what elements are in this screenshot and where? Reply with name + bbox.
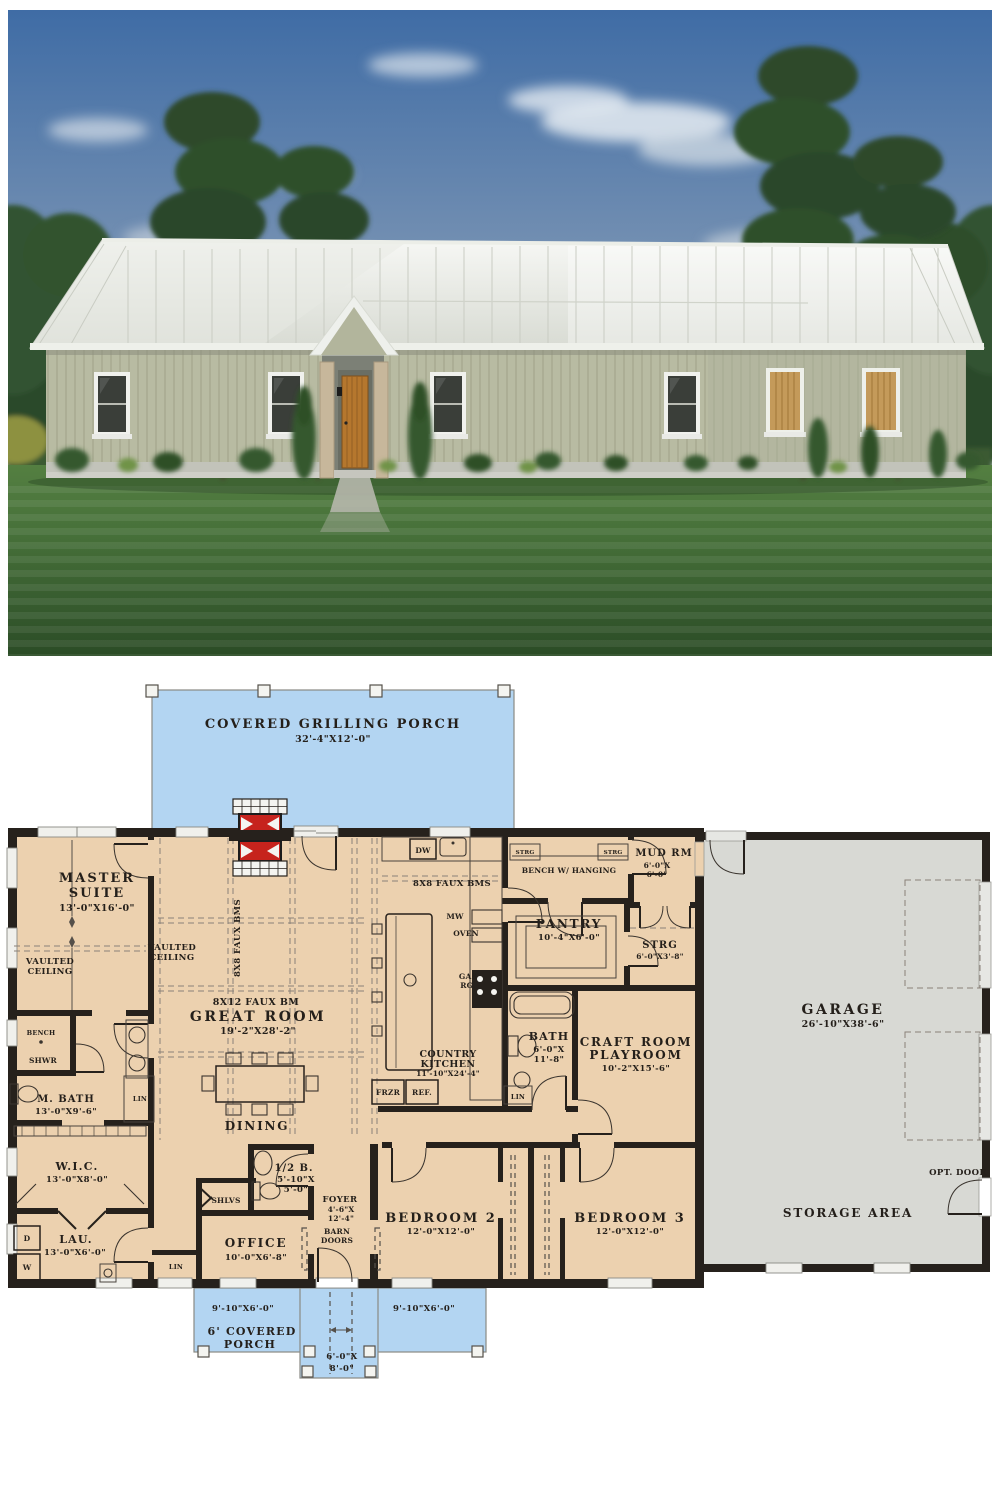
porch-light bbox=[337, 387, 342, 396]
vaulted-ceiling-great-2: CEILING bbox=[149, 953, 194, 963]
covered-porch-label-1: 6' COVERED bbox=[208, 1325, 297, 1338]
stoop-dims-2: 8'-0" bbox=[330, 1364, 354, 1374]
bath-label: BATH bbox=[529, 1030, 570, 1043]
office-lin-label: LIN bbox=[169, 1263, 183, 1271]
bedroom3-dims: 12'-0"X12'-0" bbox=[596, 1227, 664, 1237]
stoop-dims-1: 6'-0"X bbox=[326, 1352, 357, 1362]
strg-room-label: STRG bbox=[642, 940, 678, 951]
porch-left-dims: 9'-10"X6'-0" bbox=[212, 1304, 274, 1314]
strg-room-dims: 6'-0"X3'-8" bbox=[636, 952, 684, 961]
wic-dims: 13'-0"X8'-0" bbox=[46, 1175, 108, 1185]
mud-room-dims-1: 6'-0"X bbox=[644, 861, 671, 870]
office-label: OFFICE bbox=[225, 1236, 288, 1250]
grilling-porch-floor bbox=[152, 690, 514, 832]
great-room-label: GREAT ROOM bbox=[190, 1009, 326, 1025]
opt-door-opening bbox=[979, 1178, 991, 1216]
kitchen-beams-label: 8X8 FAUX BMS bbox=[413, 879, 491, 889]
bench-strg-left-label: STRG bbox=[515, 850, 534, 856]
pantry-dims: 10'-4"X6'-0" bbox=[538, 933, 600, 943]
house bbox=[30, 240, 984, 478]
garage-floor bbox=[702, 836, 986, 1266]
barn-doors-label-1: BARN bbox=[324, 1227, 350, 1236]
craft-room-label-1: CRAFT ROOM bbox=[580, 1035, 693, 1049]
master-bath-label: M. BATH bbox=[37, 1094, 95, 1105]
laundry-dims: 13'-0"X6'-0" bbox=[44, 1248, 106, 1258]
foyer-dims-2: 12'-4" bbox=[328, 1214, 354, 1223]
half-bath-label: 1/2 B. bbox=[275, 1163, 314, 1174]
portico-column-left bbox=[320, 362, 334, 478]
gas-range-label-2: RG. bbox=[460, 981, 476, 990]
floor-plan-svg: COVERED GRILLING PORCH 32'-4"X12'-0" MAS… bbox=[0, 680, 1000, 1400]
storage-area-label: STORAGE AREA bbox=[783, 1206, 913, 1220]
bench-label: BENCH bbox=[27, 1029, 56, 1037]
mud-room-label: MUD RM bbox=[635, 848, 692, 859]
great-room-beam-8x12: 8X12 FAUX BM bbox=[213, 997, 299, 1008]
gas-range-label-1: GAS bbox=[459, 972, 477, 981]
mudroom-garage-door bbox=[695, 842, 704, 876]
barn-doors-label-2: DOORS bbox=[321, 1236, 353, 1245]
half-bath-dims-2: 5'-0" bbox=[284, 1185, 308, 1195]
master-suite-dims: 13'-0"X16'-0" bbox=[59, 903, 135, 914]
craft-room-dims: 10'-2"X15'-6" bbox=[602, 1064, 670, 1074]
vaulted-ceiling-master-1: VAULTED bbox=[25, 957, 74, 967]
vaulted-ceiling-great-1: VAULTED bbox=[147, 943, 196, 953]
bench-strg-right-label: STRG bbox=[603, 850, 622, 856]
country-kitchen-dims: 11'-10"X24'-4" bbox=[416, 1069, 480, 1078]
mud-room-dims-2: 6'-0" bbox=[647, 870, 668, 879]
washer-label: W bbox=[22, 1263, 32, 1272]
house-rendering-svg bbox=[8, 10, 992, 656]
dryer-label: D bbox=[24, 1234, 31, 1243]
house-rendering-photo bbox=[8, 10, 992, 656]
oven-label: OVEN bbox=[453, 929, 479, 938]
great-room-beams-vertical: 8X8 FAUX BMS bbox=[233, 899, 243, 977]
bath-dims-2: 11'-8" bbox=[534, 1055, 565, 1065]
porch-right-dims: 9'-10"X6'-0" bbox=[393, 1304, 455, 1314]
bench-hanging-label: BENCH W/ HANGING bbox=[522, 866, 617, 875]
master-suite-label-1: MASTER bbox=[59, 871, 135, 886]
garage-door-opening-1 bbox=[979, 882, 991, 988]
freezer-label: FRZR bbox=[376, 1088, 401, 1097]
office-dims: 10'-0"X6'-8" bbox=[225, 1253, 287, 1263]
foyer-label: FOYER bbox=[322, 1195, 358, 1205]
bath-lin-label: LIN bbox=[511, 1093, 525, 1101]
wic-label: W.I.C. bbox=[54, 1160, 98, 1173]
foyer-dims-1: 4'-6"X bbox=[328, 1205, 355, 1214]
master-suite-label-2: SUITE bbox=[69, 886, 125, 901]
vaulted-ceiling-master-2: CEILING bbox=[27, 967, 72, 977]
roof bbox=[30, 240, 984, 350]
grilling-porch-dims: 32'-4"X12'-0" bbox=[295, 734, 371, 745]
refrigerator-label: REF. bbox=[412, 1088, 432, 1097]
covered-porch-label-2: PORCH bbox=[224, 1338, 276, 1351]
master-bath-dims: 13'-0"X9'-6" bbox=[35, 1107, 97, 1117]
mbath-lin-label: LIN bbox=[133, 1095, 147, 1103]
garage-entry-opening bbox=[706, 831, 746, 841]
garage-dims: 26'-10"X38'-6" bbox=[802, 1019, 885, 1030]
laundry-label: LAU. bbox=[59, 1233, 92, 1246]
opt-door-label: OPT. DOOR bbox=[929, 1168, 987, 1178]
shelves-label: SHLVS bbox=[211, 1196, 240, 1205]
bedroom2-dims: 12'-0"X12'-0" bbox=[407, 1227, 475, 1237]
grilling-porch-label: COVERED GRILLING PORCH bbox=[205, 717, 461, 732]
bedroom3-label: BEDROOM 3 bbox=[574, 1211, 686, 1226]
pantry-label: PANTRY bbox=[536, 917, 602, 931]
fireplace bbox=[229, 799, 291, 876]
floor-plan: COVERED GRILLING PORCH 32'-4"X12'-0" MAS… bbox=[0, 680, 1000, 1400]
house-plan-page: COVERED GRILLING PORCH 32'-4"X12'-0" MAS… bbox=[0, 0, 1000, 1500]
microwave-label: MW bbox=[446, 912, 464, 921]
great-room-dims: 19'-2"X28'-2" bbox=[220, 1026, 296, 1037]
craft-room-label-2: PLAYROOM bbox=[589, 1048, 682, 1062]
dining-label: DINING bbox=[225, 1119, 290, 1133]
dishwasher-label: DW bbox=[415, 846, 431, 855]
shower-label: SHWR bbox=[29, 1056, 58, 1065]
garage-label: GARAGE bbox=[802, 1002, 885, 1018]
bedroom2-label: BEDROOM 2 bbox=[385, 1211, 497, 1226]
garage-door-opening-2 bbox=[979, 1034, 991, 1140]
half-bath-dims-1: 5'-10"X bbox=[277, 1175, 315, 1185]
bath-dims-1: 6'-0"X bbox=[533, 1045, 564, 1055]
